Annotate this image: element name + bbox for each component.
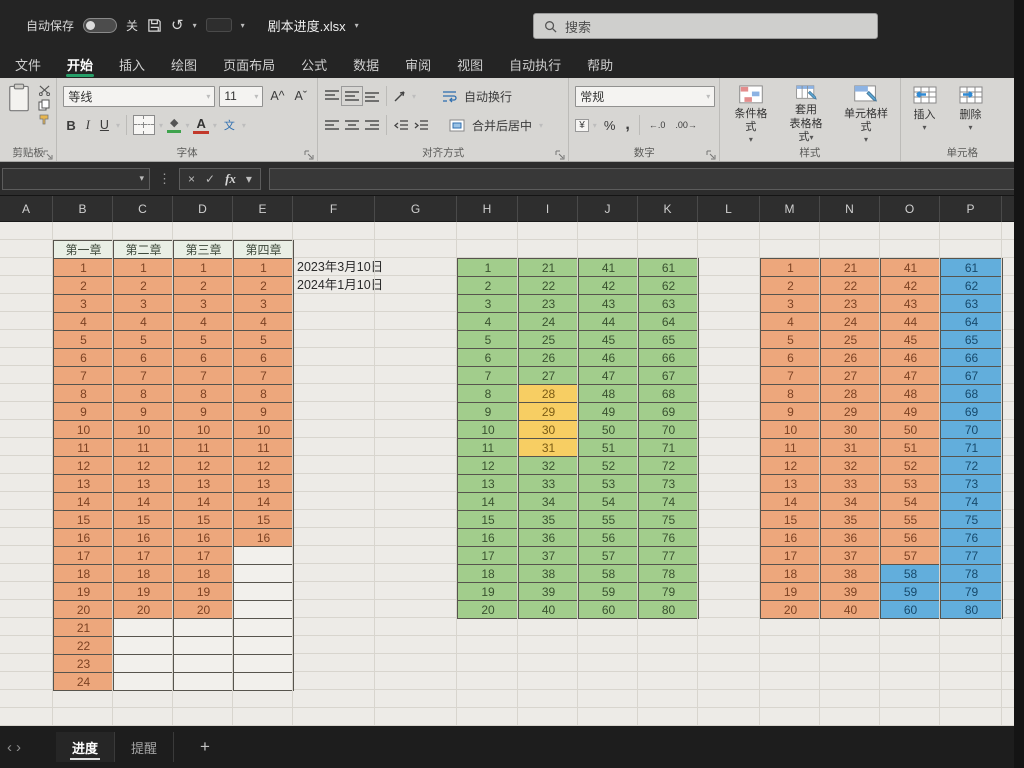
cell[interactable]: 57 <box>881 547 941 565</box>
column-header-L[interactable]: L <box>698 196 760 222</box>
cell[interactable]: 6 <box>54 349 114 367</box>
cell[interactable]: 63 <box>639 295 699 313</box>
delete-cells-button[interactable]: 删除 ▾ <box>953 84 989 146</box>
column-header-B[interactable]: B <box>53 196 113 222</box>
cell[interactable]: 12 <box>114 457 174 475</box>
cell[interactable]: 70 <box>639 421 699 439</box>
clipboard-dialog-launcher-icon[interactable] <box>43 150 53 160</box>
merge-center-icon[interactable] <box>449 119 465 132</box>
column-header-P[interactable]: P <box>940 196 1002 222</box>
phonetic-dropdown-icon[interactable]: ▾ <box>242 121 246 130</box>
cell[interactable]: 50 <box>881 421 941 439</box>
filename-dropdown-icon[interactable]: ▾ <box>355 21 359 30</box>
cell[interactable]: 9 <box>114 403 174 421</box>
cell[interactable]: 8 <box>54 385 114 403</box>
cell[interactable]: 14 <box>234 493 294 511</box>
percent-style-button[interactable]: % <box>601 117 619 134</box>
cell[interactable]: 6 <box>234 349 294 367</box>
align-top-icon[interactable] <box>324 89 340 103</box>
cell[interactable]: 66 <box>639 349 699 367</box>
cell[interactable]: 17 <box>458 547 519 565</box>
cell[interactable]: 9 <box>761 403 821 421</box>
cell[interactable] <box>234 673 294 691</box>
cell[interactable]: 30 <box>821 421 881 439</box>
cell[interactable]: 13 <box>761 475 821 493</box>
cell[interactable]: 25 <box>519 331 579 349</box>
column-header-G[interactable]: G <box>375 196 457 222</box>
ribbon-tab-视图[interactable]: 视图 <box>444 50 496 78</box>
cell[interactable]: 71 <box>941 439 1003 457</box>
align-bottom-icon[interactable] <box>364 89 380 103</box>
name-box[interactable]: ▾ <box>2 168 150 190</box>
cell[interactable]: 42 <box>579 277 639 295</box>
cell-styles-button[interactable]: 单元格样式 ▾ <box>836 84 895 146</box>
cell[interactable]: 3 <box>458 295 519 313</box>
cell[interactable]: 5 <box>174 331 234 349</box>
cell[interactable]: 45 <box>579 331 639 349</box>
header-cell[interactable]: 第一章 <box>54 241 114 259</box>
font-dialog-launcher-icon[interactable] <box>304 150 314 160</box>
cell[interactable] <box>234 655 294 673</box>
cell[interactable]: 3 <box>174 295 234 313</box>
formula-bar-handle-icon[interactable]: ⋮ <box>158 171 171 187</box>
insert-cells-button[interactable]: 插入 ▾ <box>907 84 943 146</box>
cell[interactable]: 10 <box>234 421 294 439</box>
comma-style-button[interactable]: , <box>622 115 632 135</box>
cell[interactable]: 31 <box>821 439 881 457</box>
cell[interactable]: 18 <box>54 565 114 583</box>
cell[interactable]: 12 <box>54 457 114 475</box>
fill-color-button[interactable]: ◆ <box>167 117 181 133</box>
cell[interactable]: 5 <box>234 331 294 349</box>
ribbon-tab-公式[interactable]: 公式 <box>288 50 340 78</box>
cell[interactable]: 74 <box>639 493 699 511</box>
cell[interactable]: 3 <box>114 295 174 313</box>
cell[interactable]: 60 <box>579 601 639 619</box>
cell[interactable]: 51 <box>881 439 941 457</box>
cell[interactable]: 28 <box>519 385 579 403</box>
cell[interactable]: 20 <box>174 601 234 619</box>
cell[interactable]: 32 <box>519 457 579 475</box>
cell[interactable]: 19 <box>761 583 821 601</box>
cell[interactable]: 4 <box>54 313 114 331</box>
underline-button[interactable]: U <box>97 117 112 133</box>
shrink-font-button[interactable]: Aˇ <box>292 88 311 104</box>
cell[interactable] <box>114 637 174 655</box>
cell[interactable]: 76 <box>639 529 699 547</box>
cell[interactable]: 10 <box>174 421 234 439</box>
align-middle-icon[interactable] <box>344 89 360 103</box>
ribbon-tab-开始[interactable]: 开始 <box>54 50 106 78</box>
cell[interactable]: 20 <box>458 601 519 619</box>
cell[interactable]: 78 <box>639 565 699 583</box>
cell[interactable]: 74 <box>941 493 1003 511</box>
cell[interactable]: 18 <box>458 565 519 583</box>
cell[interactable]: 10 <box>458 421 519 439</box>
merge-center-button[interactable]: 合并后居中 <box>469 116 535 135</box>
cell[interactable] <box>234 637 294 655</box>
cell[interactable]: 10 <box>761 421 821 439</box>
cell[interactable]: 2 <box>174 277 234 295</box>
cell[interactable]: 30 <box>519 421 579 439</box>
cell[interactable] <box>174 655 234 673</box>
cell[interactable]: 47 <box>579 367 639 385</box>
align-center-icon[interactable] <box>344 118 360 132</box>
cell[interactable]: 13 <box>114 475 174 493</box>
cell[interactable]: 14 <box>761 493 821 511</box>
cell[interactable]: 17 <box>761 547 821 565</box>
cell[interactable]: 49 <box>881 403 941 421</box>
cell[interactable]: 22 <box>821 277 881 295</box>
cell[interactable]: 53 <box>579 475 639 493</box>
cell[interactable]: 38 <box>519 565 579 583</box>
cell[interactable]: 16 <box>114 529 174 547</box>
cell[interactable]: 14 <box>458 493 519 511</box>
cell[interactable]: 1 <box>234 259 294 277</box>
cell[interactable]: 24 <box>54 673 114 691</box>
autosave-toggle[interactable] <box>83 18 117 33</box>
cell[interactable]: 1 <box>174 259 234 277</box>
orientation-dropdown-icon[interactable]: ▾ <box>412 92 416 101</box>
cell[interactable]: 24 <box>821 313 881 331</box>
cell[interactable]: 39 <box>821 583 881 601</box>
cell[interactable]: 9 <box>174 403 234 421</box>
cell[interactable]: 22 <box>519 277 579 295</box>
cancel-icon[interactable]: × <box>188 172 195 186</box>
cell[interactable]: 16 <box>234 529 294 547</box>
cell[interactable]: 50 <box>579 421 639 439</box>
cell[interactable]: 43 <box>579 295 639 313</box>
column-header-J[interactable]: J <box>578 196 638 222</box>
column-header-K[interactable]: K <box>638 196 698 222</box>
ribbon-tab-数据[interactable]: 数据 <box>340 50 392 78</box>
cell[interactable]: 1 <box>114 259 174 277</box>
cell[interactable]: 25 <box>821 331 881 349</box>
cell[interactable]: 17 <box>174 547 234 565</box>
sheet-tab-提醒[interactable]: 提醒 <box>115 732 174 762</box>
cell[interactable]: 16 <box>458 529 519 547</box>
cell[interactable]: 68 <box>941 385 1003 403</box>
column-header-N[interactable]: N <box>820 196 880 222</box>
cell[interactable]: 77 <box>941 547 1003 565</box>
cell[interactable]: 16 <box>174 529 234 547</box>
cell[interactable]: 56 <box>881 529 941 547</box>
cell[interactable]: 14 <box>54 493 114 511</box>
decrease-indent-icon[interactable] <box>393 119 409 132</box>
ribbon-tab-插入[interactable]: 插入 <box>106 50 158 78</box>
column-header-D[interactable]: D <box>173 196 233 222</box>
cell[interactable]: 41 <box>579 259 639 277</box>
cell[interactable] <box>174 673 234 691</box>
align-right-icon[interactable] <box>364 118 380 132</box>
undo-icon[interactable]: ↺ <box>171 18 184 33</box>
cell[interactable]: 9 <box>458 403 519 421</box>
alignment-dialog-launcher-icon[interactable] <box>555 150 565 160</box>
cell[interactable]: 2 <box>458 277 519 295</box>
cell[interactable]: 77 <box>639 547 699 565</box>
cell[interactable]: 67 <box>639 367 699 385</box>
cell[interactable]: 66 <box>941 349 1003 367</box>
cell[interactable]: 9 <box>234 403 294 421</box>
borders-dropdown-icon[interactable]: ▾ <box>159 121 163 130</box>
number-dialog-launcher-icon[interactable] <box>706 150 716 160</box>
cell[interactable]: 18 <box>761 565 821 583</box>
cell[interactable]: 15 <box>174 511 234 529</box>
cell[interactable]: 2 <box>114 277 174 295</box>
cell[interactable]: 58 <box>579 565 639 583</box>
cell[interactable]: 60 <box>881 601 941 619</box>
cell[interactable]: 23 <box>519 295 579 313</box>
font-color-button[interactable]: A <box>193 117 208 134</box>
cell[interactable]: 19 <box>54 583 114 601</box>
cell[interactable]: 26 <box>821 349 881 367</box>
format-painter-icon[interactable] <box>38 114 50 125</box>
cell[interactable]: 44 <box>579 313 639 331</box>
cell[interactable]: 4 <box>174 313 234 331</box>
cell[interactable]: 23 <box>821 295 881 313</box>
cell[interactable]: 32 <box>821 457 881 475</box>
cell[interactable]: 29 <box>821 403 881 421</box>
cell[interactable]: 12 <box>234 457 294 475</box>
cell[interactable]: 11 <box>761 439 821 457</box>
cell[interactable]: 7 <box>761 367 821 385</box>
font-family-select[interactable]: 等线 ▾ <box>63 86 215 107</box>
cell[interactable]: 17 <box>114 547 174 565</box>
cell[interactable]: 13 <box>234 475 294 493</box>
cell[interactable]: 12 <box>458 457 519 475</box>
cell[interactable]: 19 <box>174 583 234 601</box>
cell[interactable]: 37 <box>821 547 881 565</box>
sheet-grid[interactable]: 第一章第二章第三章第四章1111222233334444555566667777… <box>0 222 1024 726</box>
cell[interactable]: 45 <box>881 331 941 349</box>
cell[interactable]: 24 <box>519 313 579 331</box>
column-header-I[interactable]: I <box>518 196 578 222</box>
cell[interactable]: 61 <box>639 259 699 277</box>
cell[interactable]: 38 <box>821 565 881 583</box>
cell[interactable]: 7 <box>114 367 174 385</box>
cell[interactable]: 16 <box>54 529 114 547</box>
cell[interactable]: 19 <box>458 583 519 601</box>
cell[interactable]: 29 <box>519 403 579 421</box>
wrap-text-button[interactable]: 自动换行 <box>461 87 515 106</box>
cell[interactable]: 37 <box>519 547 579 565</box>
cell[interactable]: 47 <box>881 367 941 385</box>
number-format-select[interactable]: 常规 ▾ <box>575 86 715 107</box>
underline-dropdown-icon[interactable]: ▾ <box>116 121 120 130</box>
column-header-H[interactable]: H <box>457 196 518 222</box>
cell[interactable]: 5 <box>54 331 114 349</box>
cell[interactable]: 68 <box>639 385 699 403</box>
cell[interactable]: 8 <box>174 385 234 403</box>
search-box[interactable]: 搜索 <box>533 13 878 39</box>
font-color-dropdown-icon[interactable]: ▾ <box>213 121 217 130</box>
cell[interactable]: 22 <box>54 637 114 655</box>
conditional-formatting-button[interactable]: 条件格式 ▾ <box>726 84 775 146</box>
cell[interactable]: 35 <box>821 511 881 529</box>
cell[interactable]: 69 <box>639 403 699 421</box>
ribbon-tab-绘图[interactable]: 绘图 <box>158 50 210 78</box>
cell[interactable]: 54 <box>579 493 639 511</box>
format-as-table-button[interactable]: 套用 表格格式▾ <box>780 84 833 146</box>
cell[interactable]: 18 <box>174 565 234 583</box>
cell[interactable]: 56 <box>579 529 639 547</box>
cell[interactable]: 78 <box>941 565 1003 583</box>
cell[interactable] <box>114 619 174 637</box>
fill-color-dropdown-icon[interactable]: ▾ <box>185 121 189 130</box>
ribbon-tab-自动执行[interactable]: 自动执行 <box>496 50 574 78</box>
cell[interactable]: 15 <box>761 511 821 529</box>
cell[interactable]: 20 <box>54 601 114 619</box>
cell[interactable]: 36 <box>821 529 881 547</box>
cell[interactable]: 33 <box>821 475 881 493</box>
cell[interactable]: 11 <box>174 439 234 457</box>
cell[interactable]: 21 <box>821 259 881 277</box>
cell[interactable]: 79 <box>639 583 699 601</box>
cell[interactable]: 46 <box>579 349 639 367</box>
cell[interactable]: 48 <box>881 385 941 403</box>
grow-font-button[interactable]: A^ <box>267 88 287 104</box>
cell[interactable]: 80 <box>941 601 1003 619</box>
cell[interactable]: 34 <box>519 493 579 511</box>
cell[interactable]: 57 <box>579 547 639 565</box>
increase-indent-icon[interactable] <box>413 119 429 132</box>
cell[interactable]: 11 <box>54 439 114 457</box>
cell[interactable]: 17 <box>54 547 114 565</box>
cut-icon[interactable] <box>38 85 51 96</box>
cell[interactable]: 2 <box>234 277 294 295</box>
cell[interactable]: 44 <box>881 313 941 331</box>
column-header-A[interactable]: A <box>0 196 53 222</box>
cell[interactable]: 63 <box>941 295 1003 313</box>
cell[interactable]: 12 <box>761 457 821 475</box>
cell[interactable]: 34 <box>821 493 881 511</box>
cell[interactable]: 40 <box>821 601 881 619</box>
cell[interactable]: 4 <box>761 313 821 331</box>
cell[interactable]: 15 <box>54 511 114 529</box>
borders-button[interactable] <box>133 115 155 135</box>
cell[interactable]: 2 <box>761 277 821 295</box>
cell[interactable]: 8 <box>114 385 174 403</box>
cell[interactable]: 28 <box>821 385 881 403</box>
formula-input[interactable] <box>269 168 1016 190</box>
cell[interactable]: 72 <box>639 457 699 475</box>
cell[interactable]: 72 <box>941 457 1003 475</box>
ribbon-tab-文件[interactable]: 文件 <box>2 50 54 78</box>
cell[interactable]: 52 <box>881 457 941 475</box>
cell[interactable] <box>234 547 294 565</box>
cell[interactable]: 1 <box>54 259 114 277</box>
cell[interactable]: 23 <box>54 655 114 673</box>
header-cell[interactable]: 第四章 <box>234 241 294 259</box>
cell[interactable]: 4 <box>114 313 174 331</box>
cell[interactable]: 8 <box>761 385 821 403</box>
accounting-dropdown-icon[interactable]: ▾ <box>593 121 597 130</box>
cell[interactable]: 31 <box>519 439 579 457</box>
cell[interactable]: 15 <box>114 511 174 529</box>
cell[interactable] <box>174 637 234 655</box>
cell[interactable]: 75 <box>639 511 699 529</box>
bold-button[interactable]: B <box>63 117 78 134</box>
orientation-icon[interactable] <box>393 89 408 103</box>
add-sheet-button[interactable]: + <box>174 737 236 757</box>
cell[interactable]: 73 <box>941 475 1003 493</box>
cell[interactable]: 3 <box>54 295 114 313</box>
cell[interactable]: 58 <box>881 565 941 583</box>
cell[interactable]: 43 <box>881 295 941 313</box>
cell[interactable]: 1 <box>761 259 821 277</box>
ribbon-tab-页面布局[interactable]: 页面布局 <box>210 50 288 78</box>
cell[interactable]: 27 <box>821 367 881 385</box>
cell[interactable]: 26 <box>519 349 579 367</box>
cell[interactable]: 36 <box>519 529 579 547</box>
cell[interactable]: 10 <box>114 421 174 439</box>
cell[interactable]: 16 <box>761 529 821 547</box>
column-header-O[interactable]: O <box>880 196 940 222</box>
cell[interactable]: 54 <box>881 493 941 511</box>
cell[interactable] <box>114 655 174 673</box>
cell[interactable]: 62 <box>941 277 1003 295</box>
column-header-F[interactable]: F <box>293 196 375 222</box>
cell[interactable]: 70 <box>941 421 1003 439</box>
enter-icon[interactable]: ✓ <box>205 172 215 186</box>
cell[interactable] <box>174 619 234 637</box>
cell[interactable]: 7 <box>458 367 519 385</box>
cell[interactable]: 9 <box>54 403 114 421</box>
cell[interactable]: 48 <box>579 385 639 403</box>
cell[interactable]: 19 <box>114 583 174 601</box>
cell[interactable]: 79 <box>941 583 1003 601</box>
cell[interactable]: 21 <box>54 619 114 637</box>
cell[interactable]: 7 <box>174 367 234 385</box>
merge-dropdown-icon[interactable]: ▾ <box>539 121 543 130</box>
cell[interactable]: 73 <box>639 475 699 493</box>
accounting-format-button[interactable]: ¥ <box>575 119 589 132</box>
cell[interactable]: 42 <box>881 277 941 295</box>
cell[interactable]: 14 <box>114 493 174 511</box>
cell[interactable]: 35 <box>519 511 579 529</box>
cell[interactable]: 59 <box>881 583 941 601</box>
cell[interactable]: 13 <box>54 475 114 493</box>
increase-decimal-button[interactable]: ←.0 <box>646 119 669 131</box>
qat-customize-icon[interactable]: ▾ <box>241 21 245 30</box>
cell[interactable] <box>114 673 174 691</box>
cell[interactable]: 65 <box>941 331 1003 349</box>
cell[interactable]: 51 <box>579 439 639 457</box>
undo-dropdown-icon[interactable]: ▾ <box>193 21 197 30</box>
decrease-decimal-button[interactable]: .00→ <box>672 119 700 131</box>
cell[interactable] <box>234 601 294 619</box>
cell[interactable]: 1 <box>458 259 519 277</box>
align-left-icon[interactable] <box>324 118 340 132</box>
cell[interactable]: 52 <box>579 457 639 475</box>
cell[interactable]: 3 <box>761 295 821 313</box>
phonetic-guide-button[interactable]: 文 <box>221 116 238 134</box>
cell[interactable]: 3 <box>234 295 294 313</box>
cell[interactable]: 40 <box>519 601 579 619</box>
header-cell[interactable]: 第三章 <box>174 241 234 259</box>
cell[interactable]: 55 <box>881 511 941 529</box>
cell[interactable]: 4 <box>458 313 519 331</box>
cell[interactable]: 27 <box>519 367 579 385</box>
cell[interactable]: 64 <box>941 313 1003 331</box>
header-cell[interactable]: 第二章 <box>114 241 174 259</box>
cell[interactable]: 4 <box>234 313 294 331</box>
cell[interactable]: 5 <box>114 331 174 349</box>
cell[interactable]: 15 <box>458 511 519 529</box>
cell[interactable]: 59 <box>579 583 639 601</box>
cell[interactable]: 76 <box>941 529 1003 547</box>
document-title[interactable]: 剧本进度.xlsx <box>268 16 346 35</box>
